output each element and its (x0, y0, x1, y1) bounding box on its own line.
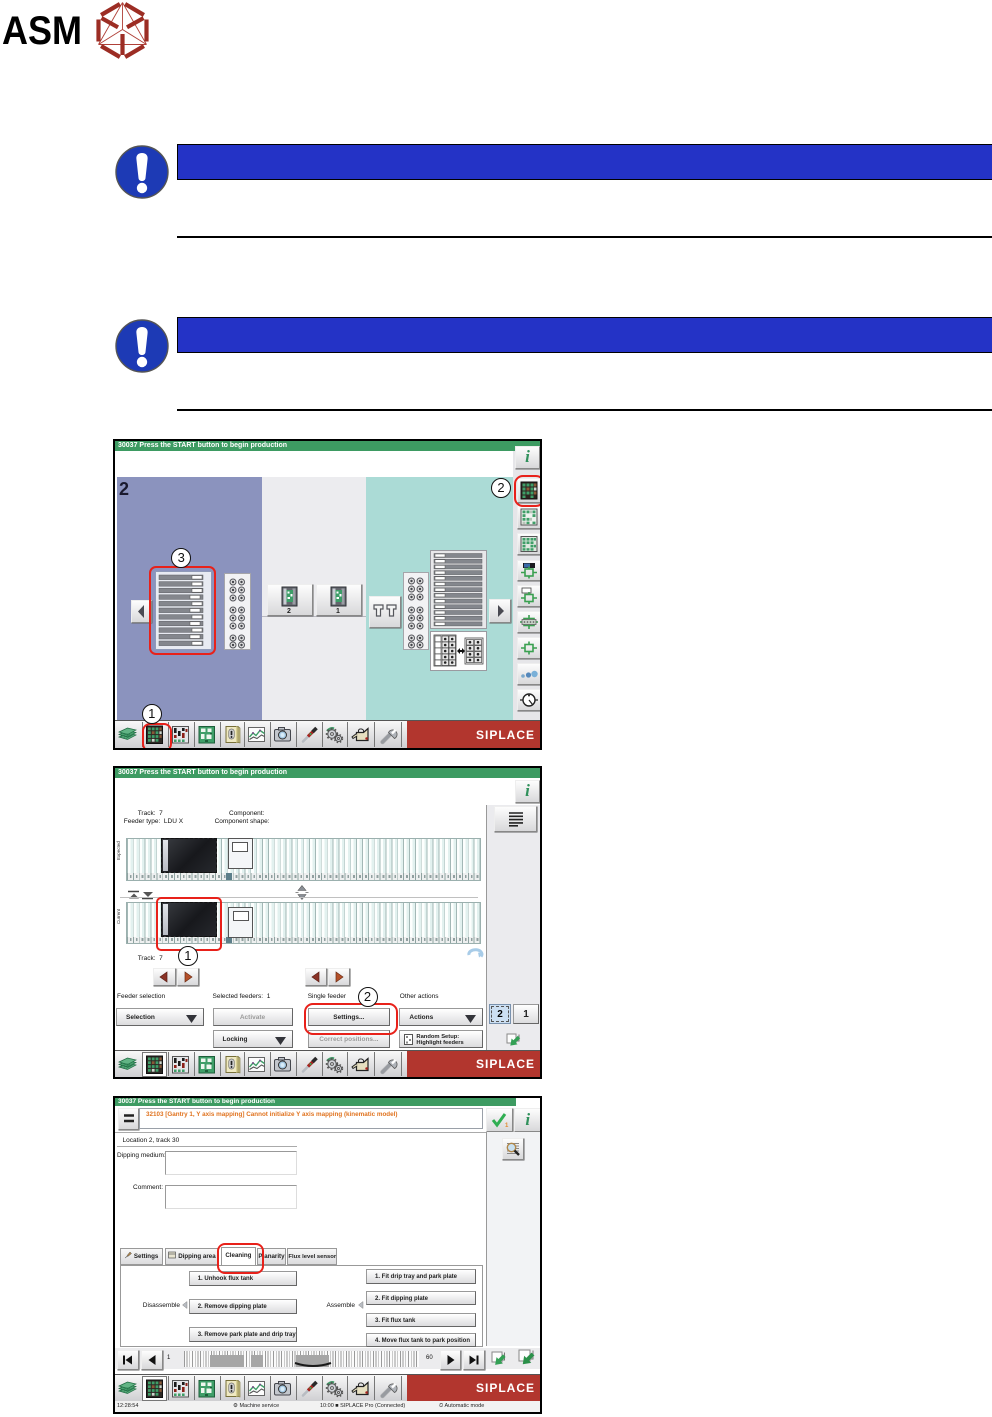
svg-text:1: 1 (336, 608, 340, 615)
svg-text:1: 1 (505, 1123, 509, 1129)
svg-text:2: 2 (287, 608, 291, 615)
